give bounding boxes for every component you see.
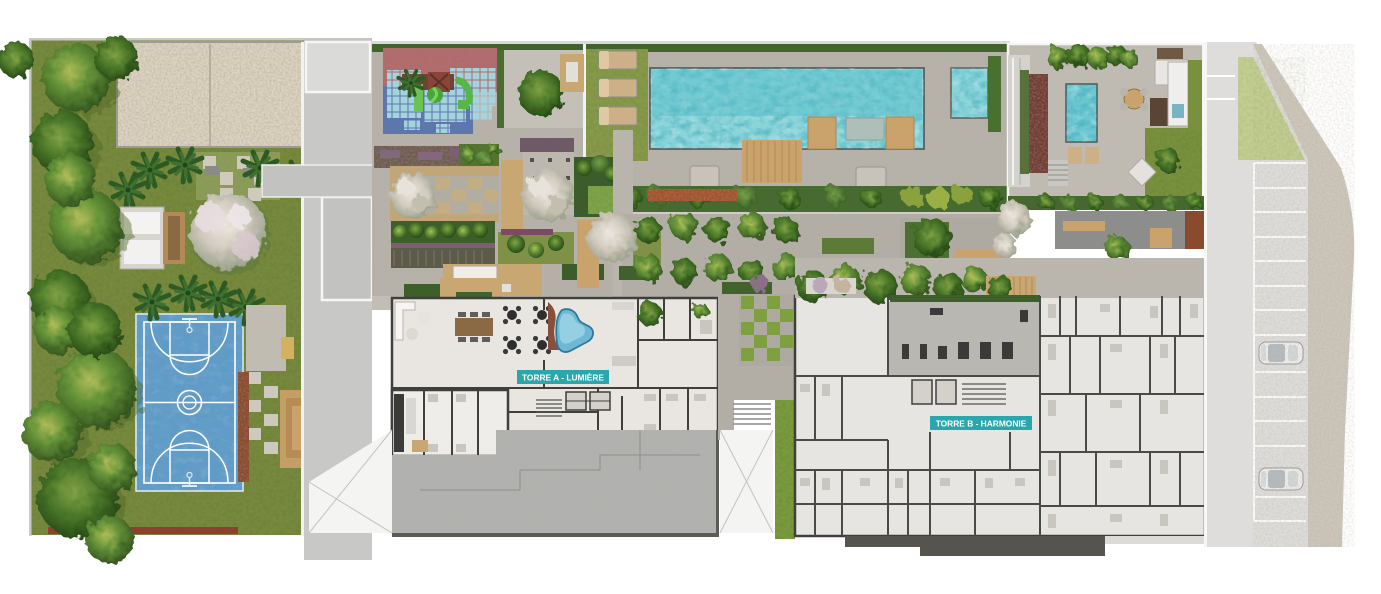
svg-text:TORRE B - HARMONIE: TORRE B - HARMONIE — [936, 419, 1027, 429]
svg-text:TORRE A - LUMIÈRE: TORRE A - LUMIÈRE — [522, 372, 604, 383]
